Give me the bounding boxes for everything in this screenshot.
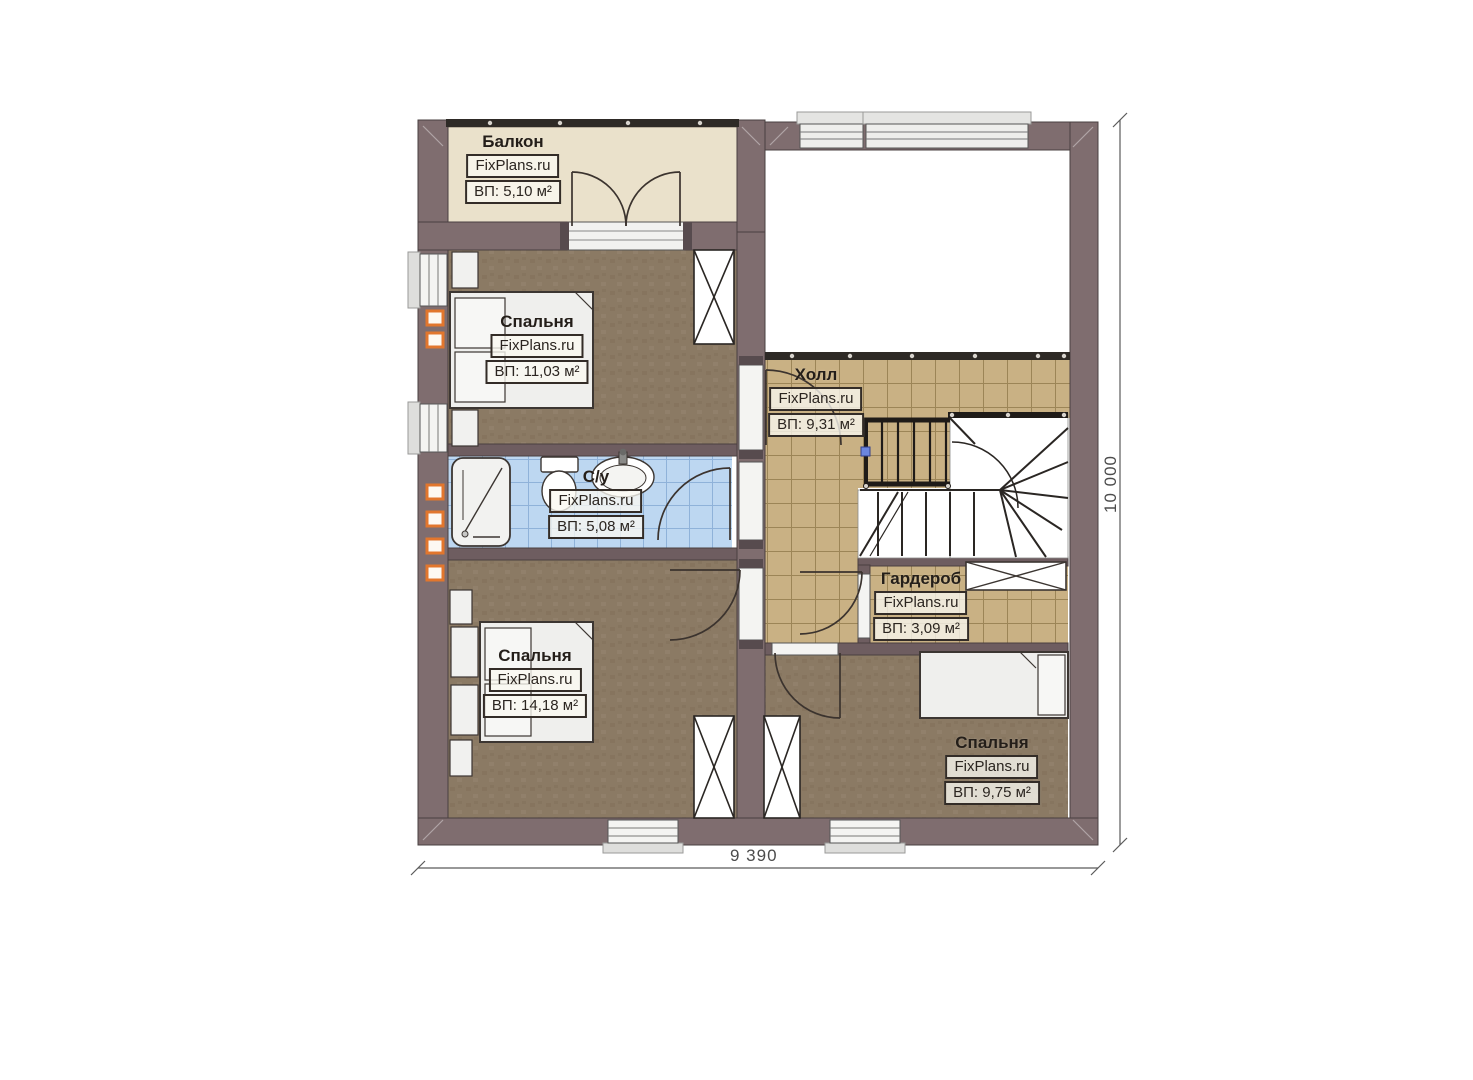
- wall-bottom: [418, 818, 1098, 845]
- info-box: FixPlans.ru ВП: 3,09 м²: [873, 591, 969, 642]
- wall-marker: [427, 512, 443, 526]
- window-top-1: [797, 112, 867, 148]
- stairs-lower-flight-body: [858, 490, 950, 558]
- room-label-bedroom3: Спальня FixPlans.ru ВП: 9,75 м²: [944, 734, 1040, 805]
- dimension-width-label: 9 390: [730, 846, 778, 866]
- wall-marker: [427, 566, 443, 580]
- watermark: FixPlans.ru: [874, 591, 967, 615]
- room-area: ВП: 14,18 м²: [483, 694, 587, 718]
- watermark: FixPlans.ru: [488, 668, 581, 692]
- room-area: ВП: 9,31 м²: [768, 413, 864, 437]
- void-open-space: [765, 150, 1070, 353]
- room-name: С/у: [583, 468, 609, 486]
- partition-bedroom1-bathroom: [448, 444, 737, 456]
- wall-right: [1070, 122, 1098, 845]
- bathroom-door-opening: [739, 462, 763, 549]
- room-name: Спальня: [955, 734, 1028, 752]
- room-label-balcony: Балкон FixPlans.ru ВП: 5,10 м²: [465, 133, 561, 204]
- window-bottom-1: [603, 820, 683, 853]
- window-left-1: [408, 252, 447, 308]
- info-box: FixPlans.ru ВП: 5,08 м²: [548, 489, 644, 540]
- room-name: Гардероб: [881, 570, 961, 588]
- shaft-bedroom3: [764, 716, 800, 818]
- window-left-2: [408, 402, 447, 454]
- shaft-bedroom1: [694, 250, 734, 344]
- room-area: ВП: 11,03 м²: [485, 360, 588, 384]
- wall-marker: [427, 311, 443, 325]
- hall-floor-under-stairs: [858, 418, 950, 488]
- room-area: ВП: 5,10 м²: [465, 180, 561, 204]
- wardrobe-door-opening: [858, 574, 870, 638]
- nightstand: [451, 685, 478, 735]
- bed-bedroom3: [920, 652, 1068, 718]
- void-railing: [765, 352, 1070, 360]
- room-name: Холл: [795, 366, 838, 384]
- bedroom2-door-opening: [739, 559, 763, 649]
- wall-marker: [427, 333, 443, 347]
- partition-bathroom-bedroom2: [448, 548, 737, 560]
- bedroom1-door-opening: [739, 356, 763, 459]
- room-name: Спальня: [498, 647, 571, 665]
- watermark: FixPlans.ru: [466, 154, 559, 178]
- watermark: FixPlans.ru: [945, 755, 1038, 779]
- info-box: FixPlans.ru ВП: 14,18 м²: [483, 668, 587, 719]
- window-bottom-2: [825, 820, 905, 853]
- nightstand: [451, 627, 478, 677]
- pillow: [1038, 655, 1065, 715]
- wall-marker: [427, 485, 443, 499]
- cabinet: [450, 590, 472, 624]
- bedroom3-door-opening: [772, 643, 838, 655]
- shower: [452, 458, 510, 546]
- watermark: FixPlans.ru: [549, 489, 642, 513]
- room-label-bathroom: С/у FixPlans.ru ВП: 5,08 м²: [548, 468, 644, 539]
- watermark: FixPlans.ru: [490, 334, 583, 358]
- balcony-railing: [446, 119, 739, 127]
- info-box: FixPlans.ru ВП: 11,03 м²: [485, 334, 588, 385]
- floor-plan-page: Балкон FixPlans.ru ВП: 5,10 м² Спальня F…: [0, 0, 1473, 1080]
- stair-marker-dot: [861, 447, 870, 456]
- watermark: FixPlans.ru: [769, 387, 862, 411]
- wall-marker: [427, 539, 443, 553]
- room-label-wardrobe: Гардероб FixPlans.ru ВП: 3,09 м²: [873, 570, 969, 641]
- wardrobe-cabinet: [966, 562, 1066, 590]
- info-box: FixPlans.ru ВП: 5,10 м²: [465, 154, 561, 205]
- shaft-bedroom2: [694, 716, 734, 818]
- room-label-hall: Холл FixPlans.ru ВП: 9,31 м²: [768, 366, 864, 437]
- room-label-bedroom2: Спальня FixPlans.ru ВП: 14,18 м²: [483, 647, 587, 718]
- info-box: FixPlans.ru ВП: 9,31 м²: [768, 387, 864, 438]
- nightstand: [452, 252, 478, 288]
- cabinet: [450, 740, 472, 776]
- balcony-door-opening: [560, 222, 692, 250]
- window-top-2: [863, 112, 1031, 148]
- nightstand: [452, 410, 478, 446]
- room-name: Балкон: [482, 133, 543, 151]
- room-area: ВП: 5,08 м²: [548, 515, 644, 539]
- room-label-bedroom1: Спальня FixPlans.ru ВП: 11,03 м²: [485, 313, 588, 384]
- room-name: Спальня: [500, 313, 573, 331]
- room-area: ВП: 3,09 м²: [873, 617, 969, 641]
- floor-plan-drawing: [0, 0, 1473, 1080]
- info-box: FixPlans.ru ВП: 9,75 м²: [944, 755, 1040, 806]
- room-area: ВП: 9,75 м²: [944, 781, 1040, 805]
- dimension-height-label: 10 000: [1101, 455, 1121, 513]
